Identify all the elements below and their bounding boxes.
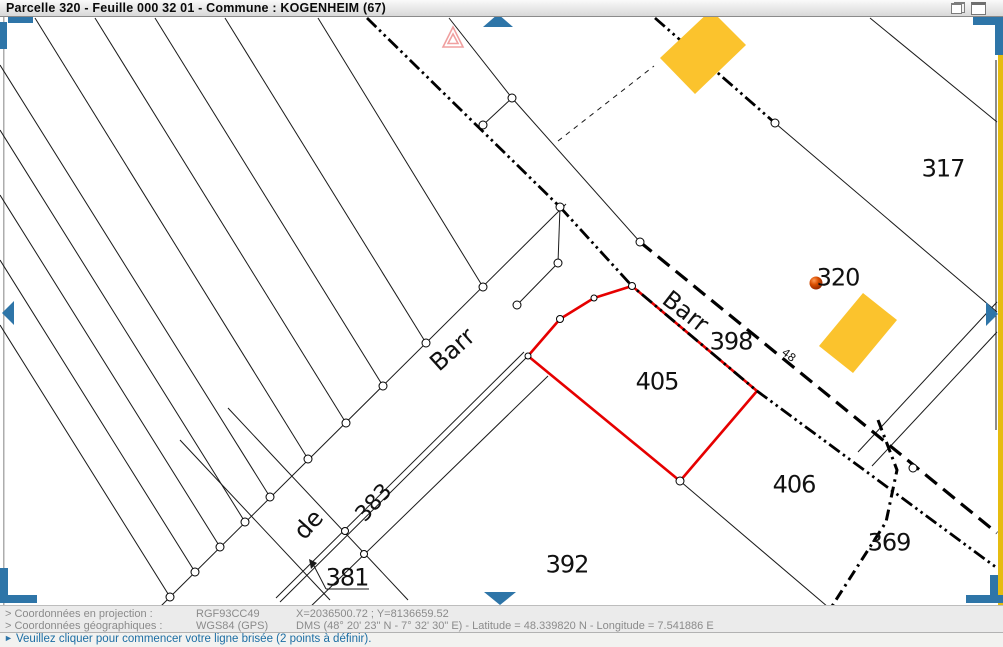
tool-instruction-text: Veuillez cliquer pour commencer votre li… <box>16 633 371 645</box>
pan-down-right-corner[interactable] <box>966 575 1003 603</box>
restore-window-icon[interactable] <box>951 2 965 14</box>
parcel-label-398: 398 <box>710 328 753 356</box>
building-1 <box>660 10 746 94</box>
parcel-label-392: 392 <box>546 551 589 579</box>
building-2 <box>819 293 897 373</box>
map-right-edge-strip <box>998 17 1003 605</box>
geographic-label: > Coordonnées géographiques : <box>5 620 162 632</box>
pan-down-left-corner[interactable] <box>0 568 37 603</box>
parcel-label-405: 405 <box>636 368 679 396</box>
message-arrow-icon: ► <box>4 633 13 643</box>
window-title: Parcelle 320 - Feuille 000 32 01 - Commu… <box>6 1 386 15</box>
pan-down-arrow[interactable] <box>484 592 516 605</box>
geographic-values: DMS (48° 20' 23" N - 7° 32' 30" E) - Lat… <box>296 620 714 632</box>
cadastral-map-canvas[interactable]: 317320398405406369392381Barrde383Barr48 <box>0 17 1003 605</box>
geographic-system: WGS84 (GPS) <box>196 620 268 632</box>
warning-triangle-icon <box>443 27 463 47</box>
parcel-label-406: 406 <box>773 471 816 499</box>
street-label-de: de <box>288 504 329 545</box>
projection-values: X=2036500.72 ; Y=8136659.52 <box>296 608 449 620</box>
projection-system: RGF93CC49 <box>196 608 260 620</box>
pan-up-right-corner[interactable] <box>973 17 1003 55</box>
tool-message-bar: ► Veuillez cliquer pour commencer votre … <box>0 632 1003 647</box>
coordinates-status-bar: > Coordonnées en projection : RGF93CC49 … <box>0 605 1003 632</box>
survey-point-circles <box>166 94 917 601</box>
cadastral-map-svg: 317320398405406369392381Barrde383Barr48 <box>0 0 1003 647</box>
parcel-label-381: 381 <box>326 564 369 592</box>
street-label-barr: Barr <box>424 322 480 377</box>
label-381-arrowhead <box>309 559 317 569</box>
cadastre-map-window: { "title_bar": { "title": "Parcelle 320 … <box>0 0 1003 647</box>
street-label-383: 383 <box>351 479 398 527</box>
restore-window-icon-front <box>951 3 962 14</box>
map-labels: 317320398405406369392381Barrde383Barr48 <box>288 155 964 592</box>
projection-label: > Coordonnées en projection : <box>5 608 153 620</box>
parcel-label-317: 317 <box>922 155 965 183</box>
maximize-window-icon[interactable] <box>971 2 986 15</box>
title-bar: Parcelle 320 - Feuille 000 32 01 - Commu… <box>0 0 1003 17</box>
parcel-label-369: 369 <box>868 529 911 557</box>
dashed-building-link-line <box>558 66 654 141</box>
street-label-48: 48 <box>779 346 798 365</box>
parcel-label-320: 320 <box>817 264 860 292</box>
pan-up-left-corner[interactable] <box>0 16 33 49</box>
